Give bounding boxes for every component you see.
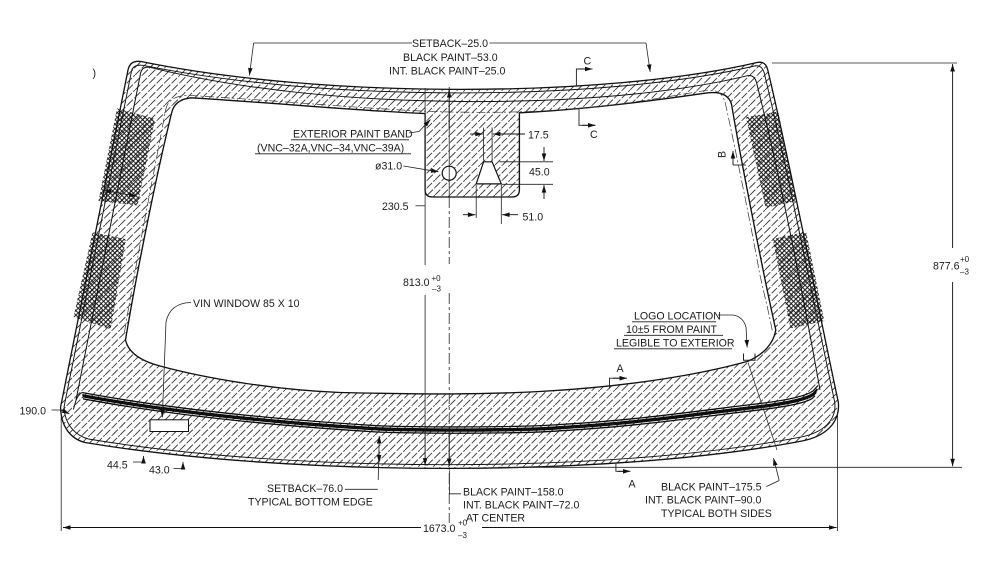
svg-text:44.5: 44.5	[107, 460, 128, 472]
svg-text:877.6: 877.6	[933, 261, 960, 273]
svg-text:813.0: 813.0	[403, 277, 430, 289]
svg-text:AT CENTER: AT CENTER	[466, 513, 525, 525]
svg-text:C: C	[590, 129, 598, 141]
svg-text:+0: +0	[432, 274, 442, 283]
svg-text:A: A	[629, 479, 637, 491]
svg-text:INT. BLACK PAINT–25.0: INT. BLACK PAINT–25.0	[389, 66, 505, 78]
svg-text:43.0: 43.0	[149, 465, 170, 477]
svg-text:EXTERIOR PAINT BAND: EXTERIOR PAINT BAND	[293, 129, 413, 141]
svg-text:INT. BLACK PAINT–72.0: INT. BLACK PAINT–72.0	[463, 500, 579, 512]
svg-text:10±5 FROM PAINT: 10±5 FROM PAINT	[626, 324, 718, 336]
svg-text:LOGO LOCATION: LOGO LOCATION	[634, 311, 721, 323]
svg-text:–3: –3	[432, 285, 441, 294]
svg-text:TYPICAL BOTH SIDES: TYPICAL BOTH SIDES	[661, 508, 772, 520]
svg-text:230.5: 230.5	[382, 201, 409, 213]
svg-text:BLACK PAINT–53.0: BLACK PAINT–53.0	[403, 52, 498, 64]
svg-text:–3: –3	[960, 268, 969, 277]
svg-text:SETBACK–76.0: SETBACK–76.0	[267, 483, 343, 495]
svg-text:+0: +0	[960, 255, 970, 264]
svg-text:C: C	[584, 56, 592, 68]
svg-text:1673.0: 1673.0	[423, 523, 456, 535]
svg-text:B: B	[717, 151, 729, 158]
svg-text:): )	[93, 68, 97, 80]
svg-text:TYPICAL BOTTOM EDGE: TYPICAL BOTTOM EDGE	[248, 497, 373, 509]
svg-text:LEGIBLE TO EXTERIOR: LEGIBLE TO EXTERIOR	[616, 338, 735, 350]
svg-text:45.0: 45.0	[529, 167, 550, 179]
svg-text:190.0: 190.0	[20, 406, 47, 418]
svg-text:A: A	[617, 363, 625, 375]
svg-text:VIN WINDOW 85 X 10: VIN WINDOW 85 X 10	[193, 298, 300, 310]
svg-text:17.5: 17.5	[528, 130, 549, 142]
svg-text:BLACK PAINT–175.5: BLACK PAINT–175.5	[661, 482, 762, 494]
svg-text:ø31.0: ø31.0	[375, 161, 402, 173]
svg-text:51.0: 51.0	[523, 212, 544, 224]
svg-text:+0: +0	[458, 519, 468, 528]
svg-text:SETBACK–25.0: SETBACK–25.0	[412, 38, 488, 50]
svg-text:BLACK PAINT–158.0: BLACK PAINT–158.0	[463, 487, 564, 499]
svg-text:INT. BLACK PAINT–90.0: INT. BLACK PAINT–90.0	[645, 495, 761, 507]
svg-text:–3: –3	[458, 531, 467, 540]
svg-text:(VNC–32A,VNC–34,VNC–39A): (VNC–32A,VNC–34,VNC–39A)	[257, 143, 404, 155]
